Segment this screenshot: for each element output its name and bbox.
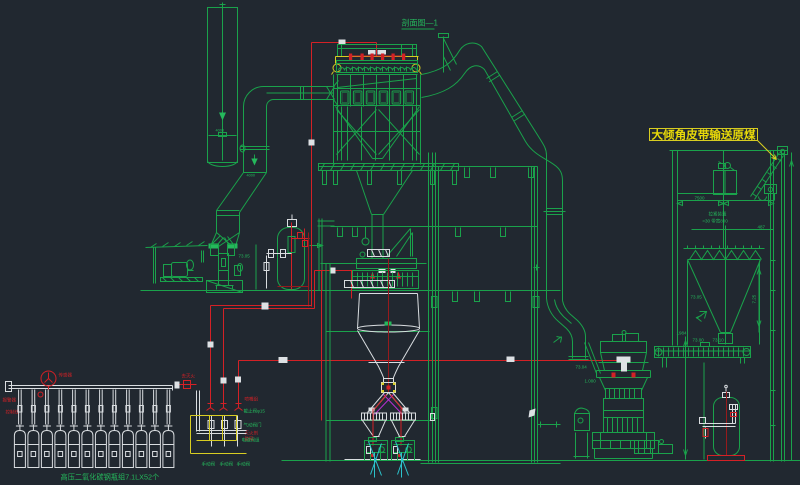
svg-text:73.04: 73.04	[576, 365, 588, 370]
svg-text:7.25: 7.25	[752, 294, 757, 303]
svg-text:喷嘴组: 喷嘴组	[245, 396, 259, 403]
svg-text:手动阀: 手动阀	[202, 461, 216, 468]
svg-text:电磁阀组: 电磁阀组	[242, 437, 260, 444]
svg-text:高压二氧化碳钢瓶组7.1LX52个: 高压二氧化碳钢瓶组7.1LX52个	[61, 473, 160, 482]
svg-text:灭火剂: 灭火剂	[245, 430, 259, 437]
svg-text:拉紧装置: 拉紧装置	[709, 211, 727, 218]
svg-text:487: 487	[758, 225, 766, 230]
svg-text:去灭火: 去灭火	[182, 373, 196, 380]
svg-text:73.05: 73.05	[239, 254, 251, 259]
svg-text:气动阀门: 气动阀门	[244, 422, 262, 429]
svg-text:手动阀: 手动阀	[237, 461, 251, 468]
svg-text:截止阀φ15: 截止阀φ15	[244, 408, 266, 415]
svg-text:手动阀: 手动阀	[220, 461, 234, 468]
svg-text:控制线: 控制线	[6, 409, 20, 416]
svg-text:73.00: 73.00	[693, 338, 705, 343]
svg-text:1984: 1984	[677, 331, 688, 336]
svg-text:4000: 4000	[216, 129, 224, 133]
svg-text:剖面图—1: 剖面图—1	[402, 18, 439, 28]
svg-text:报警器: 报警器	[3, 397, 17, 404]
svg-text:≈30 带宽800: ≈30 带宽800	[703, 218, 729, 225]
svg-text:7500: 7500	[695, 196, 706, 201]
svg-text:传感器: 传感器	[59, 372, 73, 379]
svg-text:4000: 4000	[247, 174, 255, 178]
svg-text:1.000: 1.000	[585, 379, 597, 384]
svg-text:73.05: 73.05	[691, 295, 703, 300]
svg-text:大倾角皮带输送原煤: 大倾角皮带输送原煤	[652, 128, 757, 142]
